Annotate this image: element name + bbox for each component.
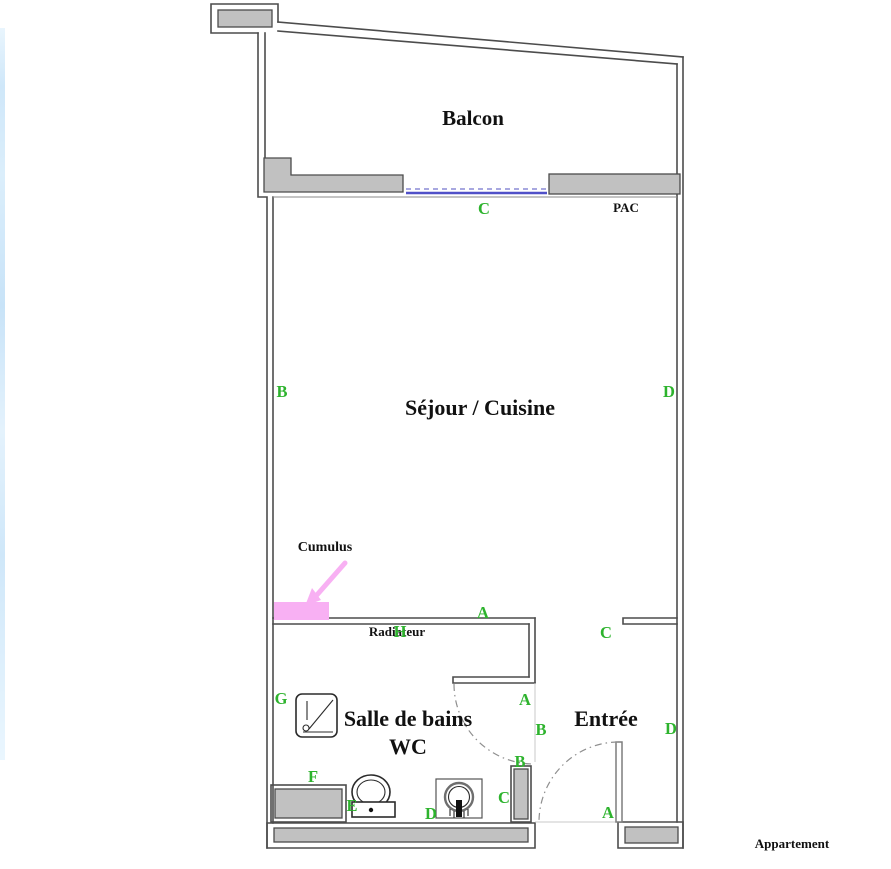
marker-C-balcony: C bbox=[478, 199, 490, 218]
wall-balcony-bottom-left bbox=[264, 158, 403, 192]
room-label-entree: Entrée bbox=[574, 706, 638, 731]
marker-A-entrance-door: A bbox=[602, 803, 614, 822]
equipment-label-cumulus: Cumulus bbox=[298, 540, 353, 555]
room-label-sejour-cuisine: Séjour / Cuisine bbox=[405, 395, 555, 420]
cumulus-rect bbox=[274, 602, 329, 620]
wall-balcony-top-outer bbox=[278, 22, 683, 57]
floorplan-svg: Balcon Séjour / Cuisine Salle de bains W… bbox=[0, 0, 891, 869]
marker-A-bathroom-door: A bbox=[519, 690, 531, 709]
cumulus-arrow-line bbox=[316, 563, 345, 596]
wall-bathroom-nook bbox=[453, 677, 535, 683]
marker-D-sejour-right: D bbox=[663, 382, 675, 401]
marker-H-radiateur: H bbox=[394, 622, 407, 641]
wall-bath-block-fill bbox=[275, 789, 342, 818]
floorplan-page: Balcon Séjour / Cuisine Salle de bains W… bbox=[0, 0, 891, 869]
marker-D-sink: D bbox=[425, 804, 437, 823]
marker-B-entree-left: B bbox=[535, 720, 546, 739]
shower-icon bbox=[296, 694, 337, 737]
wall-bottom-left-fill bbox=[274, 828, 528, 842]
equipment-label-pac: PAC bbox=[613, 200, 639, 215]
wall-bottom-right-fill bbox=[625, 827, 678, 843]
marker-D-entree-right: D bbox=[665, 719, 677, 738]
cumulus-annotation bbox=[274, 563, 345, 620]
wall-bathroom-right bbox=[529, 618, 535, 683]
apartment-label: Appartement bbox=[755, 836, 830, 851]
toilet-tank bbox=[352, 802, 395, 817]
room-label-salle-de-bains: Salle de bains bbox=[344, 706, 473, 731]
marker-C-entree-opening: C bbox=[600, 623, 612, 642]
marker-F-bath-block: F bbox=[308, 767, 318, 786]
sink-icon bbox=[436, 779, 482, 818]
toilet-icon bbox=[352, 775, 395, 817]
sink-tap bbox=[456, 800, 462, 817]
marker-C-pier-low: C bbox=[498, 788, 510, 807]
marker-B-pier: B bbox=[514, 752, 525, 771]
entrance-door-leaf bbox=[616, 742, 622, 822]
toilet-button bbox=[369, 808, 373, 812]
marker-A-bathroom-wall: A bbox=[477, 603, 489, 622]
marker-B-sejour-left: B bbox=[276, 382, 287, 401]
shower-tray bbox=[296, 694, 337, 737]
marker-E-toilet: E bbox=[346, 796, 357, 815]
wall-pier-fill bbox=[514, 769, 528, 819]
wall-balcony-top-inner bbox=[278, 31, 677, 64]
wall-entree-top bbox=[623, 618, 677, 624]
room-label-wc: WC bbox=[389, 734, 427, 759]
wall-balcony-bottom-right bbox=[549, 174, 680, 194]
room-label-balcon: Balcon bbox=[442, 106, 504, 130]
wall-chimney-fill bbox=[218, 10, 272, 27]
marker-G-bathroom-left: G bbox=[275, 689, 288, 708]
